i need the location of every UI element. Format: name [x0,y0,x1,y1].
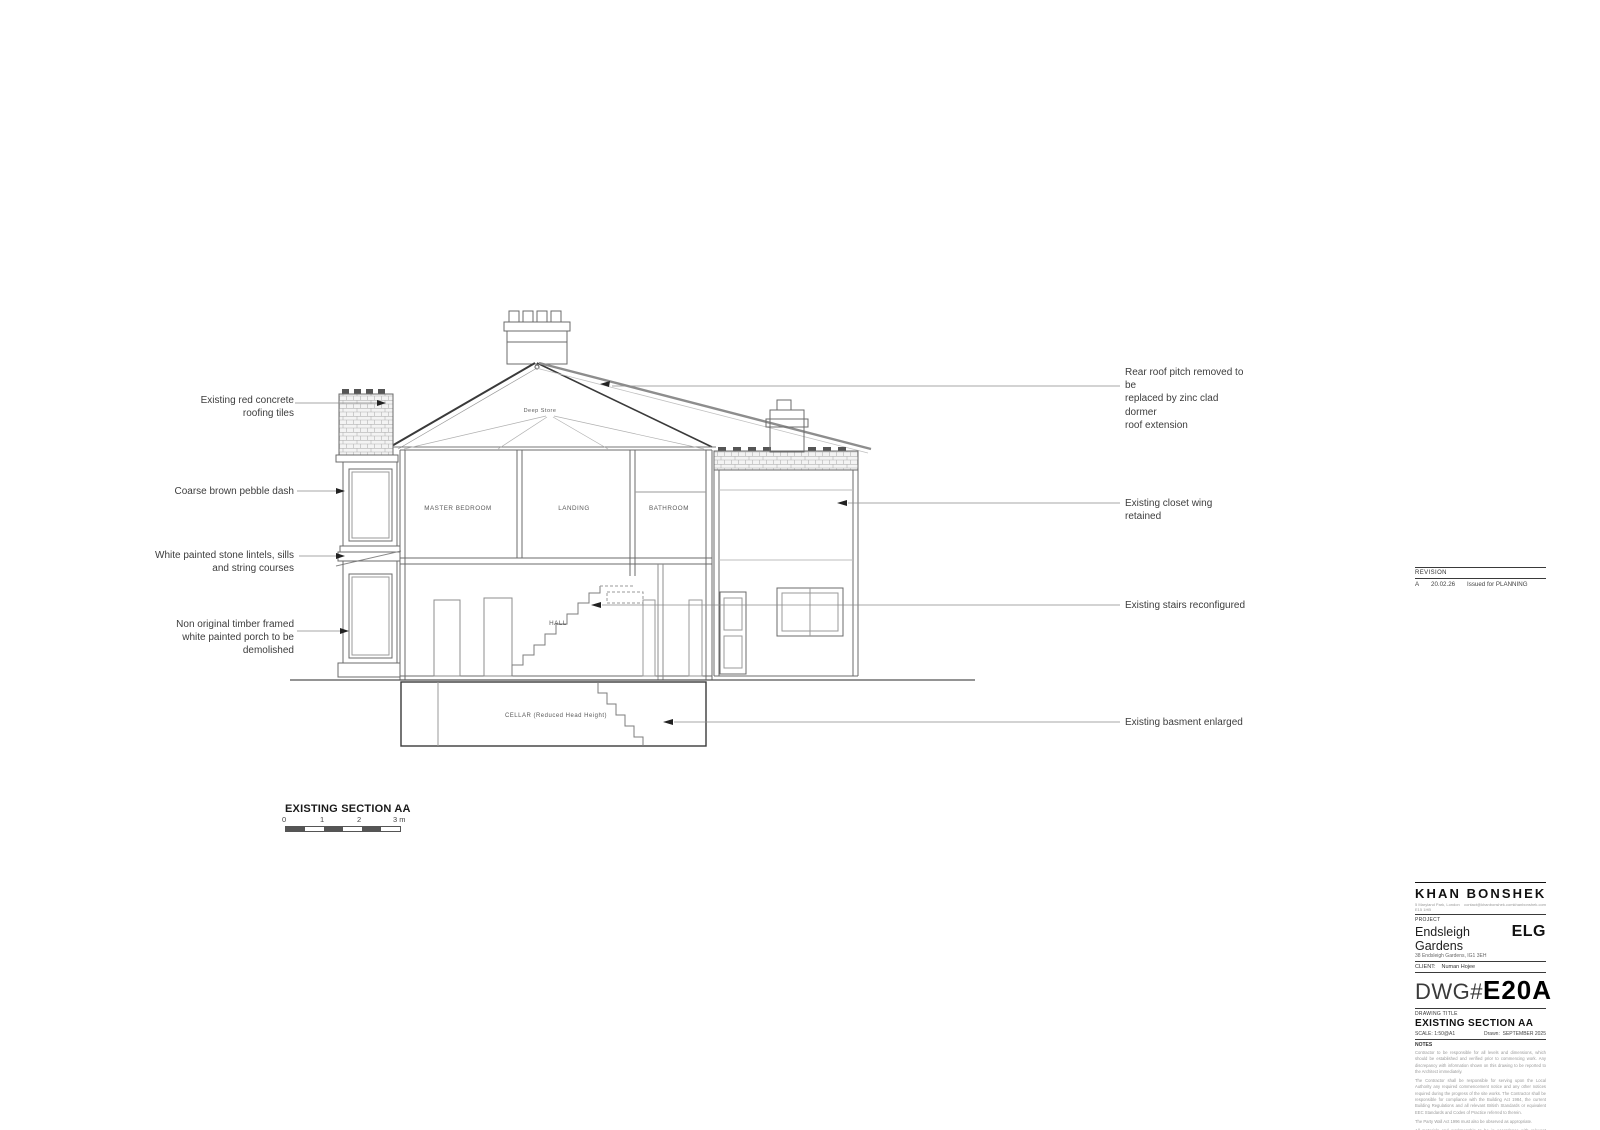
project-code-logo: ELG [1512,923,1546,941]
firm-name: KHAN BONSHEK [1415,886,1546,901]
dwg-label: DWG# [1415,979,1483,1005]
notes-label: NOTES [1415,1042,1546,1048]
firm-email: contact@khanbonshek.com [1464,902,1513,912]
room-label-cellar: CELLAR (Reduced Head Height) [505,713,607,719]
drawn-value: Drawn: SEPTEMBER 2025 [1484,1031,1546,1037]
room-label-hall: HALL [549,620,567,627]
annotation-porch-demolished: Non original timber framed white painted… [124,618,294,658]
front-facade [336,389,401,677]
section-caption: EXISTING SECTION AA [285,803,411,815]
main-body-walls [400,450,712,680]
client-label: CLIENT: [1415,964,1435,970]
firm-contact-row: 5 Maryland Park, London E15 1HB contact@… [1415,902,1546,912]
annotation-roofing-tiles: Existing red concrete roofing tiles [124,394,294,420]
scale-tick-3: 3 m [393,815,406,824]
project-address: 38 Endsleigh Gardens, IG1 3EH [1415,953,1546,959]
scale-tick-1: 1 [320,815,324,824]
room-label-bathroom: BATHROOM [649,505,689,512]
notes-paragraph: The Contractor shall be responsible for … [1415,1078,1546,1116]
ground-floor-doors [434,564,702,680]
notes-paragraph: The Party Wall Act 1996 must also be obs… [1415,1119,1546,1125]
closet-wing [714,447,858,676]
drawing-title: EXISTING SECTION AA [1415,1018,1546,1029]
revision-block: REVISION A 20.02.26 Issued for PLANNING [1415,565,1546,588]
drawing-title-label: DRAWING TITLE [1415,1011,1546,1017]
wing-parapet-dentils [718,447,846,451]
annotation-stairs-reconfigured: Existing stairs reconfigured [1125,599,1250,612]
scale-bar [285,826,401,832]
scale-tick-2: 2 [357,815,361,824]
annotation-pebble-dash: Coarse brown pebble dash [124,485,294,498]
client-name: Numan Hojee [1441,964,1475,970]
annotation-basement-enlarged: Existing basment enlarged [1125,716,1250,729]
parapet-dentils [342,389,385,394]
title-block: KHAN BONSHEK 5 Maryland Park, London E15… [1415,880,1546,1130]
dwg-number: E20A [1483,975,1552,1006]
firm-address: 5 Maryland Park, London E15 1HB [1415,902,1464,912]
drawing-sheet: Deep Store MASTER BEDROOM LANDING BATHRO… [0,0,1600,1130]
annotation-rear-roof-pitch: Rear roof pitch removed to be replaced b… [1125,366,1250,432]
revision-description: Issued for PLANNING [1467,581,1546,588]
scale-tick-0: 0 [282,815,286,824]
project-name: Endsleigh Gardens [1415,925,1512,953]
revision-header: REVISION [1415,570,1546,576]
revision-date: 20.02.26 [1431,581,1467,588]
revision-letter: A [1415,581,1431,588]
room-label-master-bedroom: MASTER BEDROOM [424,505,492,512]
leader-lines [295,386,1120,722]
hall-stairs [512,586,643,676]
scale-value: SCALE: 1:50@A1 [1415,1031,1455,1037]
annotation-closet-wing: Existing closet wing retained [1125,497,1250,523]
right-chimney [766,400,808,452]
main-roof [385,363,871,453]
firm-website: khanbonshek.com [1514,902,1546,912]
revision-row: A 20.02.26 Issued for PLANNING [1415,581,1546,588]
annotation-stone-lintels: White painted stone lintels, sills and s… [124,549,294,575]
room-label-deep-store: Deep Store [524,408,557,414]
left-chimney [504,311,570,364]
room-label-landing: LANDING [558,505,590,512]
notes-paragraph: Contractor to be responsible for all lev… [1415,1050,1546,1075]
